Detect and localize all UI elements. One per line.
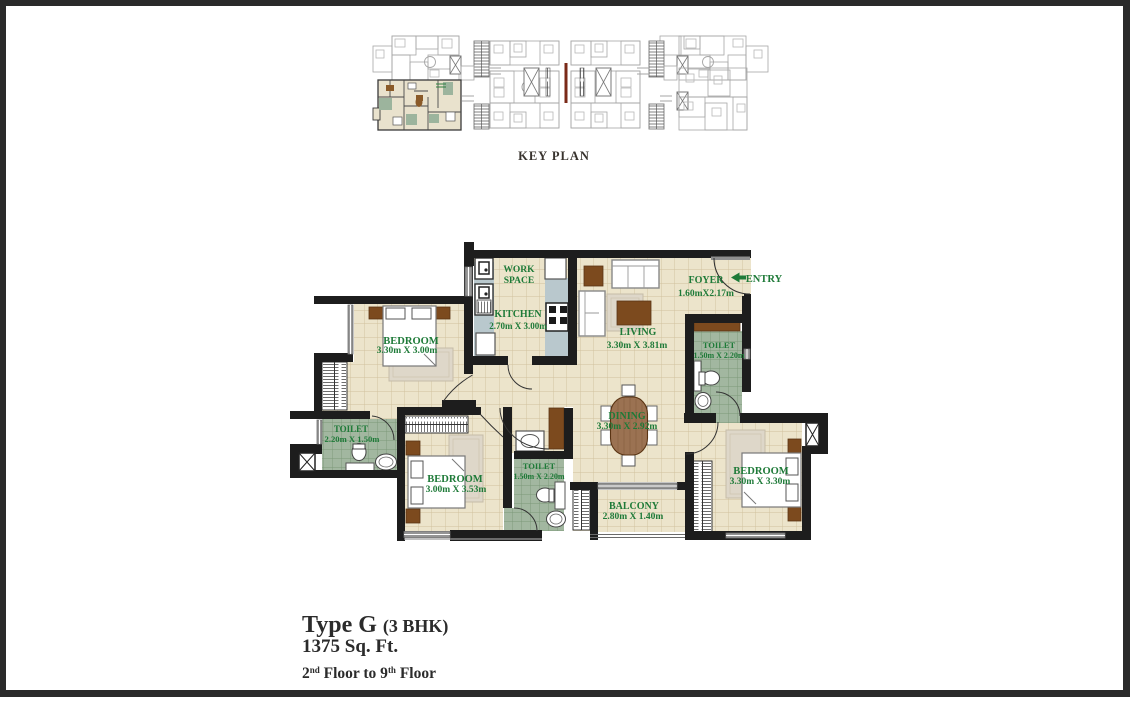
svg-text:ENTRY: ENTRY (746, 274, 783, 285)
svg-text:FOYER: FOYER (689, 275, 725, 286)
svg-text:KITCHEN: KITCHEN (494, 309, 542, 320)
svg-text:1.60mX2.17m: 1.60mX2.17m (678, 289, 734, 299)
svg-text:BALCONY: BALCONY (609, 501, 660, 512)
svg-text:BEDROOM: BEDROOM (427, 474, 483, 485)
svg-text:2nd Floor to 9th Floor: 2nd Floor to 9th Floor (302, 665, 436, 682)
svg-text:3.30m X 2.92m: 3.30m X 2.92m (597, 422, 658, 432)
svg-text:2.20m X 1.50m: 2.20m X 1.50m (325, 434, 381, 444)
svg-text:TOILET: TOILET (334, 424, 368, 434)
svg-text:3.30m X 3.00m: 3.30m X 3.00m (377, 346, 438, 356)
svg-text:2.70m X 3.00m: 2.70m X 3.00m (489, 321, 547, 331)
svg-text:WORK: WORK (503, 265, 535, 275)
svg-text:1.50m X 2.20m: 1.50m X 2.20m (513, 472, 564, 481)
svg-text:1375 Sq. Ft.: 1375 Sq. Ft. (302, 636, 398, 657)
svg-text:3.00m X 3.53m: 3.00m X 3.53m (426, 485, 487, 495)
svg-text:TOILET: TOILET (703, 340, 736, 350)
svg-text:3.30m X 3.30m: 3.30m X 3.30m (730, 477, 791, 487)
svg-text:TOILET: TOILET (523, 461, 556, 471)
svg-text:SPACE: SPACE (504, 276, 534, 286)
svg-text:DINING: DINING (608, 411, 645, 422)
svg-text:KEY PLAN: KEY PLAN (518, 149, 590, 163)
svg-text:2.80m X 1.40m: 2.80m X 1.40m (603, 512, 664, 522)
svg-text:LIVING: LIVING (620, 327, 657, 338)
svg-text:BEDROOM: BEDROOM (733, 466, 789, 477)
svg-text:1.50m X 2.20m: 1.50m X 2.20m (693, 351, 744, 360)
svg-text:3.30m X 3.81m: 3.30m X 3.81m (607, 341, 668, 351)
svg-text:Type G (3 BHK): Type G (3 BHK) (302, 612, 448, 638)
